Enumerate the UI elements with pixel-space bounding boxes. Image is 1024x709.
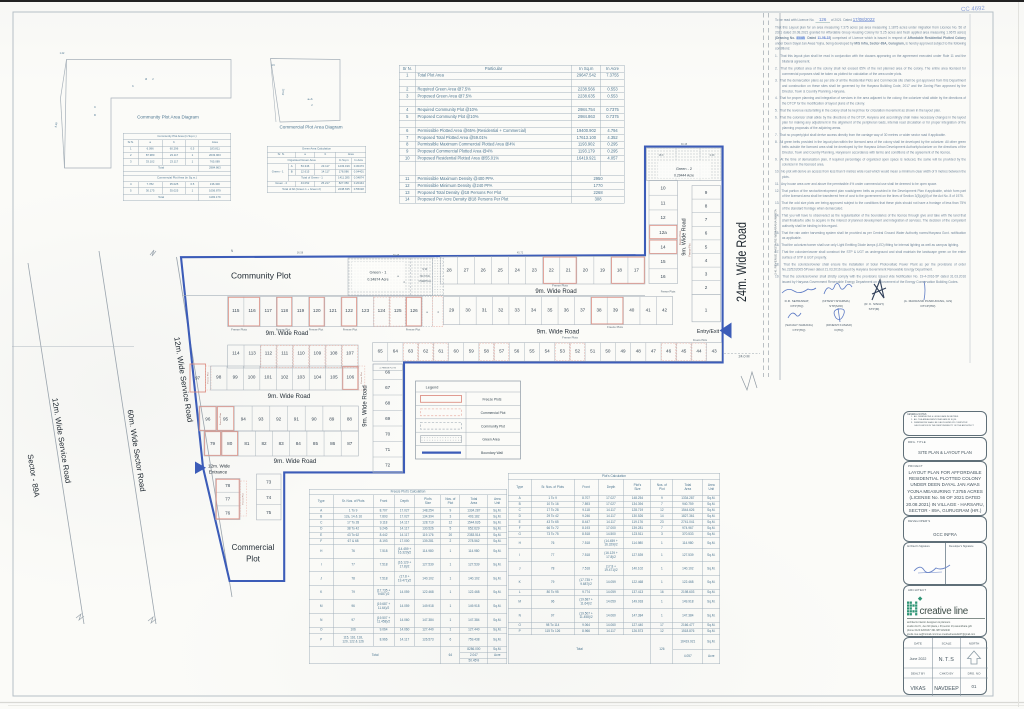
- svg-text:(R. K. SINGH): (R. K. SINGH): [864, 302, 884, 306]
- svg-text:47: 47: [651, 349, 657, 354]
- svg-text:80: 80: [227, 441, 233, 446]
- svg-text:C: C: [94, 105, 96, 109]
- svg-text:96: 96: [205, 417, 211, 422]
- svg-text:52: 52: [575, 349, 581, 354]
- svg-text:99: 99: [233, 375, 239, 380]
- svg-text:92: 92: [276, 417, 282, 422]
- svg-text:28: 28: [447, 268, 453, 273]
- svg-text:21: 21: [566, 268, 572, 273]
- svg-text:55: 55: [529, 349, 535, 354]
- svg-text:68: 68: [385, 401, 391, 406]
- svg-text:63: 63: [408, 349, 414, 354]
- svg-text:109: 109: [314, 351, 322, 356]
- svg-text:Freeze Plots: Freeze Plots: [693, 339, 708, 342]
- svg-text:18: 18: [617, 268, 623, 273]
- svg-text:27: 27: [464, 268, 470, 273]
- svg-text:14: 14: [660, 245, 666, 250]
- svg-text:Freeze Plot: Freeze Plot: [242, 493, 245, 505]
- svg-text:53: 53: [560, 349, 566, 354]
- svg-text:D: D: [94, 113, 96, 117]
- svg-text:76: 76: [225, 510, 231, 515]
- svg-text:9m. Wide Road: 9m. Wide Road: [274, 458, 317, 465]
- svg-text:36.58: 36.58: [297, 252, 304, 255]
- svg-text:50: 50: [605, 349, 611, 354]
- svg-text:Freeze Plot: Freeze Plot: [360, 372, 363, 384]
- svg-text:43: 43: [712, 349, 718, 354]
- svg-text:NORTH: NORTH: [969, 642, 980, 646]
- svg-text:35.02: 35.02: [281, 88, 286, 95]
- svg-text:100: 100: [248, 375, 256, 380]
- svg-text:30.48: 30.48: [681, 143, 688, 146]
- svg-text:1.22: 1.22: [60, 52, 65, 55]
- svg-text:65: 65: [378, 349, 384, 354]
- svg-text:9m. Wide Road: 9m. Wide Road: [535, 289, 576, 295]
- svg-text:Sector - 89A: Sector - 89A: [26, 453, 42, 498]
- svg-text:7: 7: [705, 217, 708, 222]
- svg-text:2: 2: [152, 77, 154, 81]
- svg-text:25: 25: [498, 268, 504, 273]
- svg-text:93: 93: [258, 417, 264, 422]
- svg-text:Freeze Plots: Freeze Plots: [562, 336, 578, 340]
- svg-text:45: 45: [681, 349, 687, 354]
- svg-text:D(HQ): D(HQ): [835, 328, 844, 332]
- svg-text:CC 4692: CC 4692: [961, 6, 986, 13]
- svg-text:126: 126: [410, 308, 418, 313]
- svg-text:Freeze Plot: Freeze Plot: [207, 372, 210, 384]
- svg-text:10: 10: [660, 186, 666, 191]
- svg-text:Freeze Plot: Freeze Plot: [688, 243, 692, 257]
- svg-text:51: 51: [590, 349, 596, 354]
- svg-text:31: 31: [482, 308, 488, 313]
- svg-text:NAVDEEP: NAVDEEP: [934, 686, 959, 692]
- svg-text:12m. Wide: 12m. Wide: [208, 464, 230, 469]
- svg-text:40: 40: [629, 308, 635, 313]
- svg-text:45.72: 45.72: [517, 252, 524, 255]
- svg-text:Freeze Plot: Freeze Plot: [343, 328, 358, 332]
- svg-text:84: 84: [296, 441, 302, 446]
- svg-text:8.38: 8.38: [54, 121, 59, 127]
- svg-text:DEALT BY: DEALT BY: [911, 672, 925, 676]
- svg-text:DTCP(HR): DTCP(HR): [921, 304, 936, 308]
- svg-text:Freeze Plots: Freeze Plots: [661, 290, 676, 294]
- svg-text:118: 118: [281, 308, 289, 313]
- svg-text:83: 83: [279, 441, 285, 446]
- svg-text:64: 64: [393, 349, 399, 354]
- svg-text:107: 107: [346, 351, 354, 356]
- svg-text:124: 124: [378, 308, 386, 313]
- svg-text:42: 42: [662, 308, 668, 313]
- svg-text:60m. Wide Sector Road: 60m. Wide Sector Road: [126, 409, 148, 492]
- svg-text:60: 60: [454, 349, 460, 354]
- svg-text:101: 101: [264, 375, 272, 380]
- svg-text:35: 35: [547, 308, 553, 313]
- svg-text:123: 123: [361, 308, 369, 313]
- svg-text:105: 105: [330, 375, 338, 380]
- svg-text:STP(M): STP(M): [869, 307, 880, 311]
- svg-text:95: 95: [223, 417, 229, 422]
- svg-text:72: 72: [385, 463, 391, 468]
- svg-text:9m. Wide Road: 9m. Wide Road: [266, 330, 309, 337]
- svg-text:9m. Wide Road: 9m. Wide Road: [682, 218, 688, 255]
- svg-text:103: 103: [297, 375, 305, 380]
- svg-text:N: N: [231, 249, 234, 253]
- svg-text:Entry/Exit: Entry/Exit: [697, 329, 720, 335]
- svg-text:94: 94: [241, 417, 247, 422]
- svg-text:61: 61: [438, 349, 444, 354]
- svg-text:44: 44: [696, 349, 702, 354]
- svg-text:15: 15: [660, 259, 666, 264]
- svg-text:0.34874 Acre: 0.34874 Acre: [367, 278, 388, 282]
- svg-text:2: 2: [705, 285, 708, 290]
- svg-text:38: 38: [596, 308, 602, 313]
- svg-text:104: 104: [314, 375, 322, 380]
- svg-text:30: 30: [465, 308, 471, 313]
- svg-text:12m. Wide Service Road: 12m. Wide Service Road: [50, 397, 72, 484]
- svg-text:(SANJAY NARANG): (SANJAY NARANG): [785, 323, 813, 327]
- svg-text:24: 24: [515, 268, 521, 273]
- svg-text:112: 112: [265, 351, 273, 356]
- svg-text:4.6: 4.6: [271, 64, 275, 67]
- svg-text:114: 114: [232, 351, 240, 356]
- svg-text:86: 86: [330, 441, 336, 446]
- svg-text:34: 34: [531, 308, 537, 313]
- svg-text:41: 41: [646, 308, 652, 313]
- svg-text:115: 115: [232, 308, 240, 313]
- svg-text:CTP(HQ): CTP(HQ): [793, 328, 806, 332]
- svg-text:phone 0120 4208137 491 987113: phone 0120 4208137 491 9871132240: [907, 629, 951, 632]
- svg-text:122: 122: [345, 308, 353, 313]
- svg-text:a: a: [145, 77, 147, 81]
- svg-text:89: 89: [329, 417, 335, 422]
- svg-text:b: b: [132, 84, 134, 88]
- svg-text:Green - 1: Green - 1: [370, 270, 388, 275]
- svg-text:STP(M/R): STP(M/R): [829, 304, 843, 308]
- svg-text:Entrance: Entrance: [209, 470, 228, 475]
- svg-text:0.29444 Acre: 0.29444 Acre: [674, 174, 694, 178]
- svg-text:Community Plot: Community Plot: [231, 271, 292, 281]
- svg-text:26: 26: [481, 268, 487, 273]
- svg-text:48: 48: [636, 349, 642, 354]
- svg-text:120: 120: [313, 308, 321, 313]
- svg-text:32: 32: [498, 308, 504, 313]
- svg-text:88: 88: [347, 417, 353, 422]
- svg-text:58: 58: [484, 349, 490, 354]
- svg-text:DRG. NO: DRG. NO: [968, 672, 982, 676]
- svg-text:87: 87: [347, 441, 353, 446]
- svg-text:91: 91: [294, 417, 300, 422]
- svg-text:113: 113: [248, 351, 256, 356]
- svg-text:(NITESH SHARMA): (NITESH SHARMA): [822, 299, 850, 303]
- svg-text:Freeze Plots: Freeze Plots: [231, 328, 247, 332]
- svg-text:12a: 12a: [659, 230, 667, 235]
- svg-text:CHK'D BY: CHK'D BY: [940, 672, 954, 676]
- svg-text:4: 4: [437, 310, 439, 314]
- svg-text:Community Plot: Community Plot: [481, 424, 505, 428]
- svg-text:24.0 M: 24.0 M: [739, 355, 750, 359]
- svg-text:54: 54: [545, 349, 551, 354]
- svg-text:73: 73: [266, 479, 272, 484]
- svg-text:Green - 2: Green - 2: [676, 167, 692, 171]
- svg-text:98: 98: [216, 375, 222, 380]
- svg-text:9m. Wide Road: 9m. Wide Road: [363, 385, 369, 426]
- svg-text:37: 37: [580, 308, 586, 313]
- svg-text:3: 3: [705, 272, 708, 277]
- svg-text:June 2022: June 2022: [910, 657, 927, 661]
- svg-text:S.W.: S.W.: [422, 267, 428, 271]
- svg-text:w. FREEZE PLOTS: w. FREEZE PLOTS: [379, 368, 396, 370]
- svg-text:architects interior designers: architects interior designers & planners: [907, 621, 951, 624]
- svg-text:6: 6: [705, 231, 708, 236]
- svg-text:18.3: 18.3: [659, 154, 664, 157]
- svg-text:D.R. SEHRAWAT,: D.R. SEHRAWAT,: [785, 299, 810, 303]
- svg-text:studio 2nd fl., dev hill plaza: studio 2nd fl., dev hill plaza,-i 33,sec…: [907, 625, 973, 628]
- svg-text:22: 22: [549, 268, 555, 273]
- svg-text:62: 62: [423, 349, 429, 354]
- svg-text:DATE: DATE: [914, 642, 922, 646]
- svg-text:117: 117: [265, 308, 273, 313]
- svg-text:12: 12: [660, 215, 666, 220]
- svg-text:16: 16: [660, 274, 666, 279]
- svg-text:77: 77: [225, 497, 231, 502]
- svg-text:46: 46: [666, 349, 672, 354]
- svg-text:1: 1: [705, 308, 708, 313]
- svg-text:(DINESH KUMAR): (DINESH KUMAR): [826, 323, 852, 327]
- svg-text:9: 9: [705, 190, 708, 195]
- svg-text:a+b: a+b: [307, 97, 312, 101]
- svg-text:VIKAS: VIKAS: [910, 686, 926, 692]
- svg-text:Freeze Plots: Freeze Plots: [219, 412, 222, 425]
- svg-text:85: 85: [313, 441, 319, 446]
- svg-text:2.43: 2.43: [710, 154, 715, 157]
- svg-text:Freeze Plots: Freeze Plots: [482, 398, 501, 402]
- svg-text:Freeze Plot: Freeze Plot: [406, 328, 421, 332]
- svg-text:75: 75: [266, 510, 272, 515]
- svg-text:2: 2: [311, 103, 313, 107]
- svg-text:69: 69: [385, 416, 391, 421]
- svg-text:Plot: Plot: [246, 555, 261, 564]
- svg-text:119: 119: [297, 308, 305, 313]
- svg-text:Boundary Wall: Boundary Wall: [481, 451, 503, 455]
- svg-text:78: 78: [225, 483, 231, 488]
- svg-text:82: 82: [261, 441, 267, 446]
- svg-text:70: 70: [385, 432, 391, 437]
- svg-text:Freeze Plot: Freeze Plot: [309, 328, 324, 332]
- svg-text:56: 56: [514, 349, 520, 354]
- svg-text:111: 111: [281, 351, 288, 356]
- svg-text:30.48: 30.48: [393, 254, 400, 257]
- svg-text:Commercial Plot Area Diagram: Commercial Plot Area Diagram: [279, 125, 342, 130]
- svg-text:90: 90: [311, 417, 317, 422]
- svg-text:36: 36: [564, 308, 570, 313]
- svg-text:Community Plot Area Diagram: Community Plot Area Diagram: [137, 115, 199, 120]
- svg-text:5: 5: [705, 244, 708, 249]
- svg-text:97: 97: [195, 376, 201, 381]
- svg-text:125: 125: [394, 308, 402, 313]
- svg-text:9m. Wide Road: 9m. Wide Road: [537, 329, 580, 336]
- svg-text:79: 79: [210, 441, 216, 446]
- svg-text:29: 29: [449, 308, 455, 313]
- svg-text:121: 121: [329, 308, 337, 313]
- svg-text:N.T.S: N.T.S: [939, 657, 955, 663]
- svg-text:33: 33: [515, 308, 521, 313]
- svg-text:01: 01: [972, 684, 977, 689]
- svg-text:106: 106: [346, 375, 354, 380]
- svg-text:SCALE: SCALE: [942, 642, 952, 646]
- svg-text:116: 116: [248, 308, 256, 313]
- svg-text:OVERHALL: OVERHALL: [419, 280, 432, 283]
- svg-text:Commercial: Commercial: [232, 543, 275, 552]
- svg-text:Green Area: Green Area: [482, 438, 499, 442]
- svg-text:a: a: [426, 310, 428, 314]
- svg-text:HGT P.W.: HGT P.W.: [420, 275, 431, 278]
- svg-text:DTP(HQ): DTP(HQ): [791, 304, 804, 308]
- svg-text:9m. Wide Road: 9m. Wide Road: [268, 393, 311, 400]
- svg-text:studio crea ve@hotmail.com li: studio crea ve@hotmail.com lines creativ…: [907, 633, 975, 636]
- svg-text:23: 23: [532, 268, 538, 273]
- svg-text:Commercial Plot: Commercial Plot: [481, 411, 506, 415]
- svg-text:11: 11: [661, 200, 666, 205]
- svg-text:102: 102: [281, 375, 289, 380]
- svg-text:(A. MAKRAND PANDURANG, IAS): (A. MAKRAND PANDURANG, IAS): [904, 299, 952, 303]
- svg-text:71: 71: [385, 447, 391, 452]
- svg-text:Freeze Plots: Freeze Plots: [552, 284, 568, 288]
- svg-text:20: 20: [583, 268, 589, 273]
- svg-text:59: 59: [469, 349, 475, 354]
- svg-text:110: 110: [297, 351, 305, 356]
- svg-text:74: 74: [266, 495, 272, 500]
- svg-text:39: 39: [613, 308, 619, 313]
- svg-text:Legend: Legend: [426, 385, 439, 389]
- svg-text:4: 4: [705, 258, 708, 263]
- svg-text:81: 81: [244, 441, 250, 446]
- svg-text:17: 17: [634, 268, 640, 273]
- svg-text:108: 108: [330, 351, 338, 356]
- svg-text:49: 49: [621, 349, 627, 354]
- svg-text:Freeze Plots: Freeze Plots: [607, 325, 623, 329]
- svg-text:24m. Wide Road: 24m. Wide Road: [734, 222, 749, 302]
- svg-text:creative line: creative line: [920, 606, 969, 617]
- svg-text:19: 19: [600, 268, 606, 273]
- svg-text:57: 57: [499, 349, 505, 354]
- svg-text:67: 67: [385, 385, 391, 390]
- svg-text:8: 8: [705, 204, 708, 209]
